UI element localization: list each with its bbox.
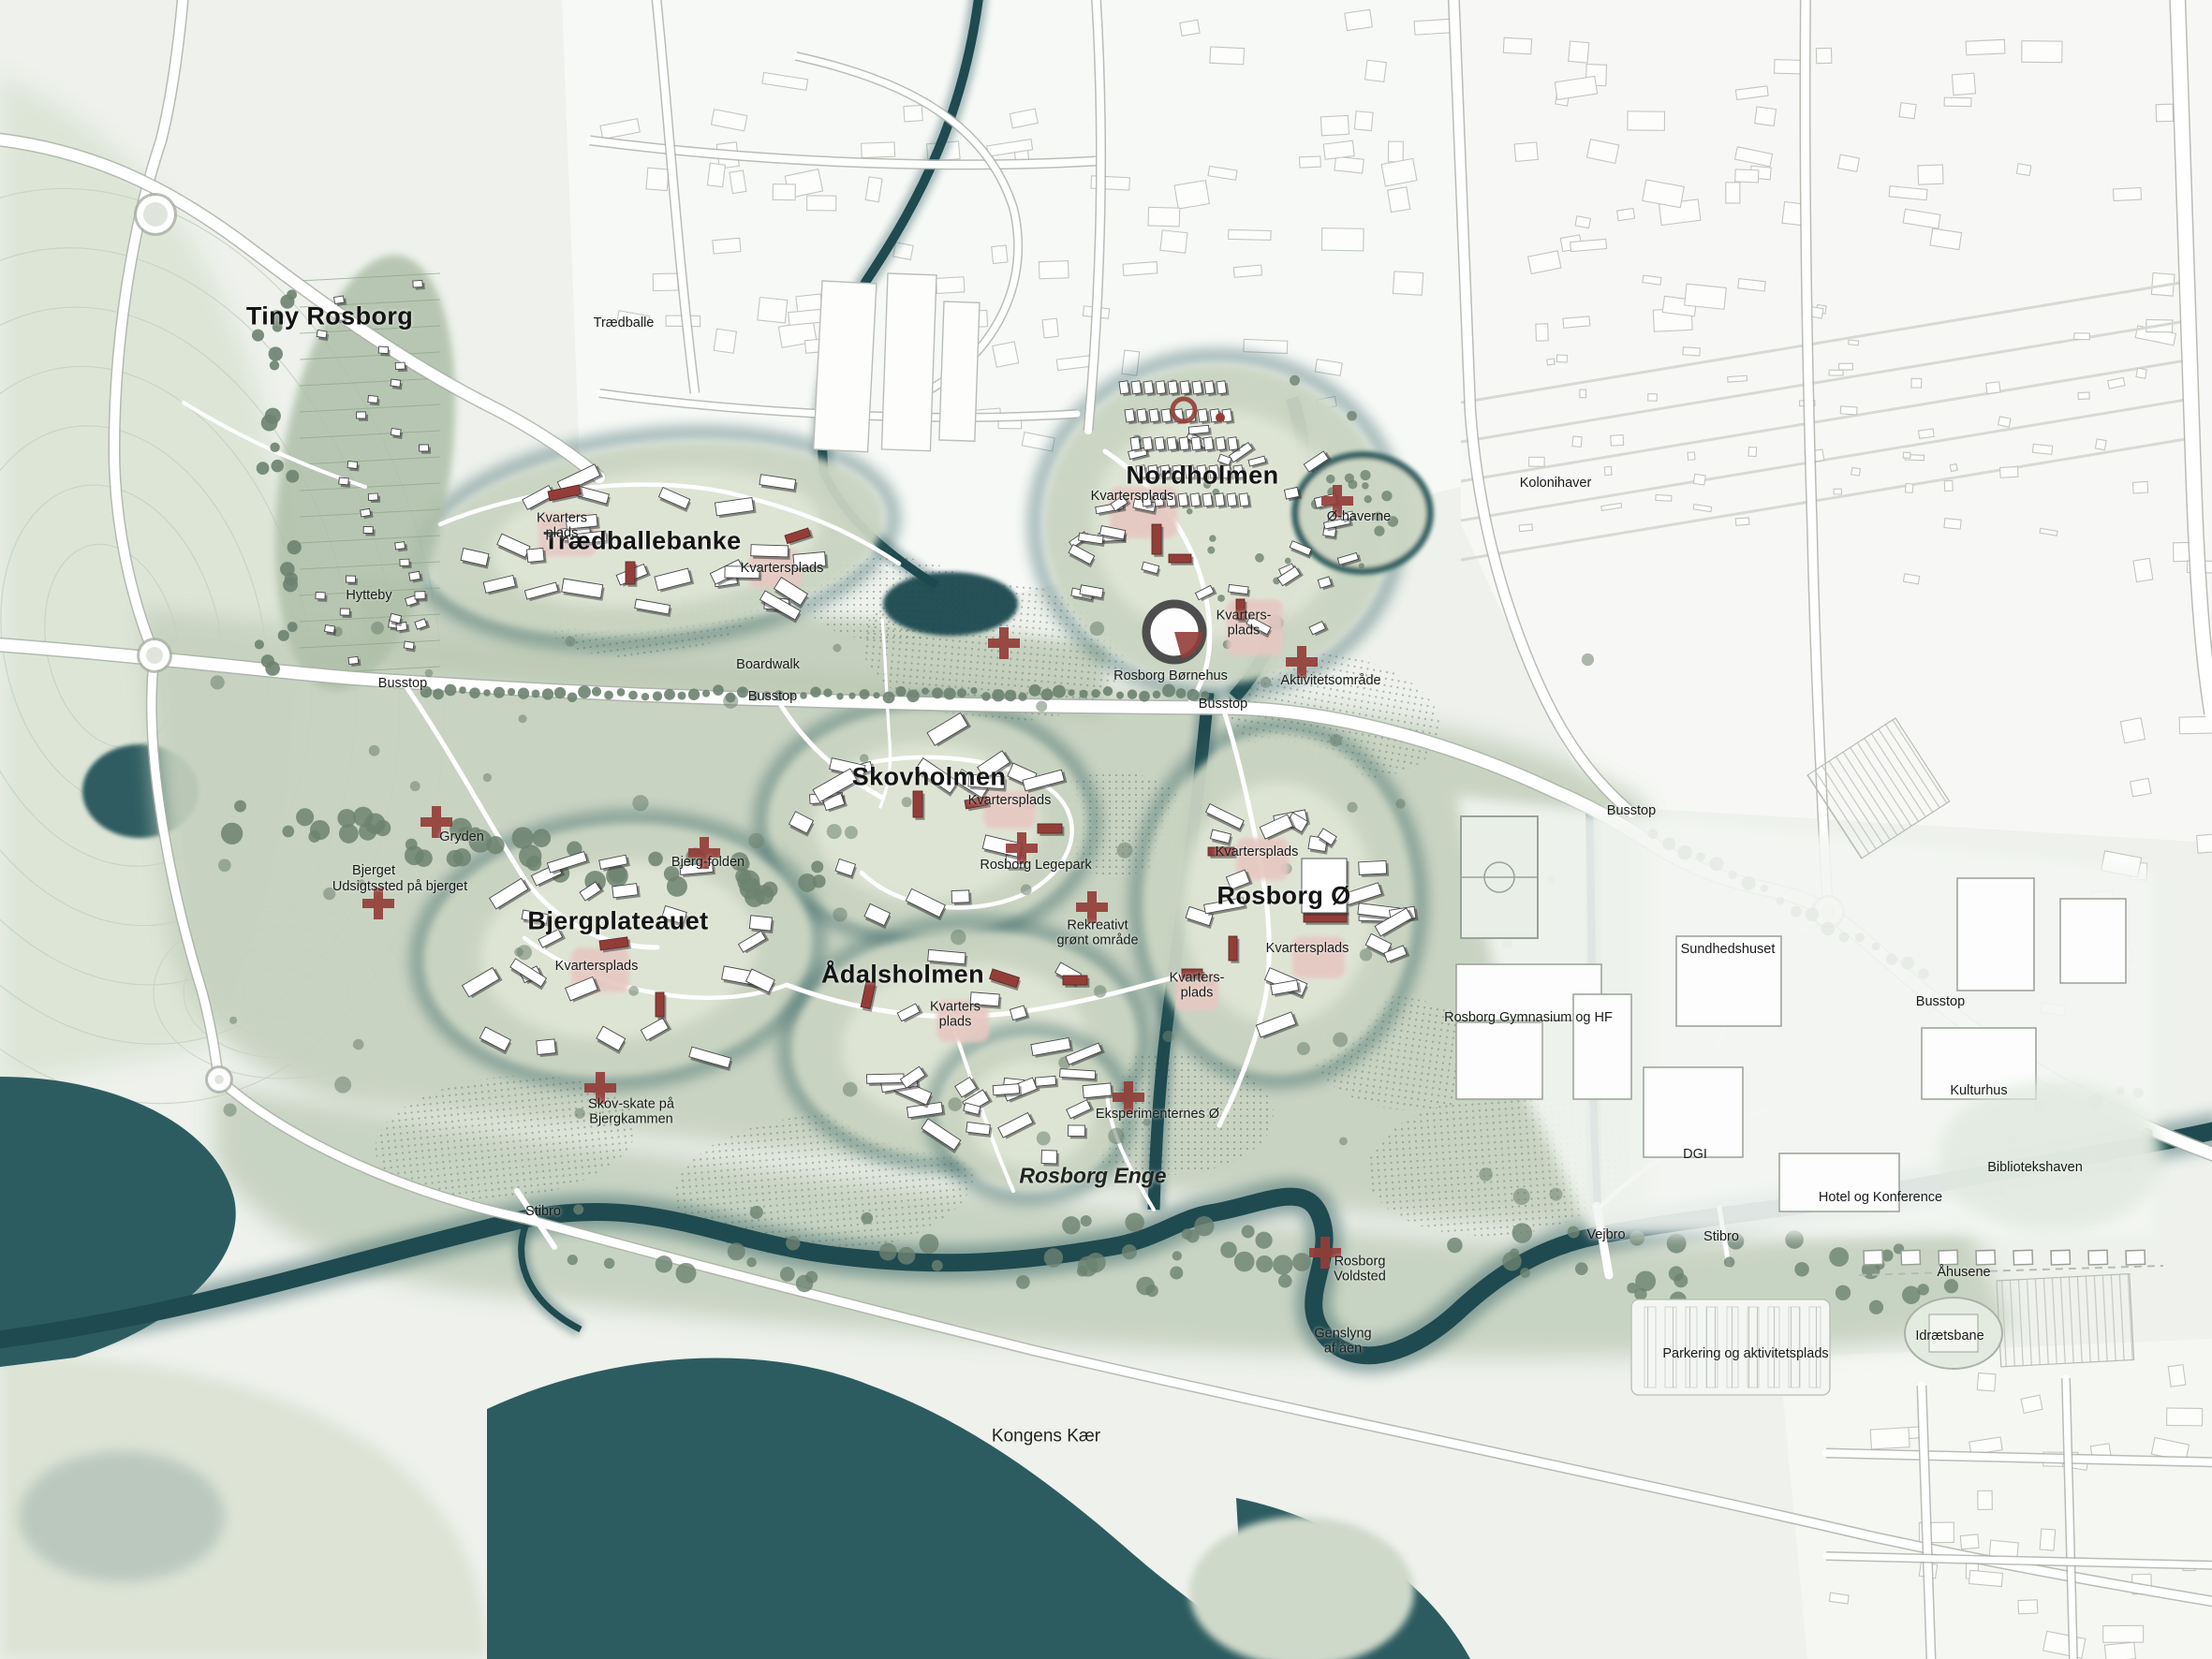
masterplan-map: Tiny RosborgTrædballebankeNordholmenSkov… [0,0,2212,1659]
map-base-canvas [0,0,2212,1659]
